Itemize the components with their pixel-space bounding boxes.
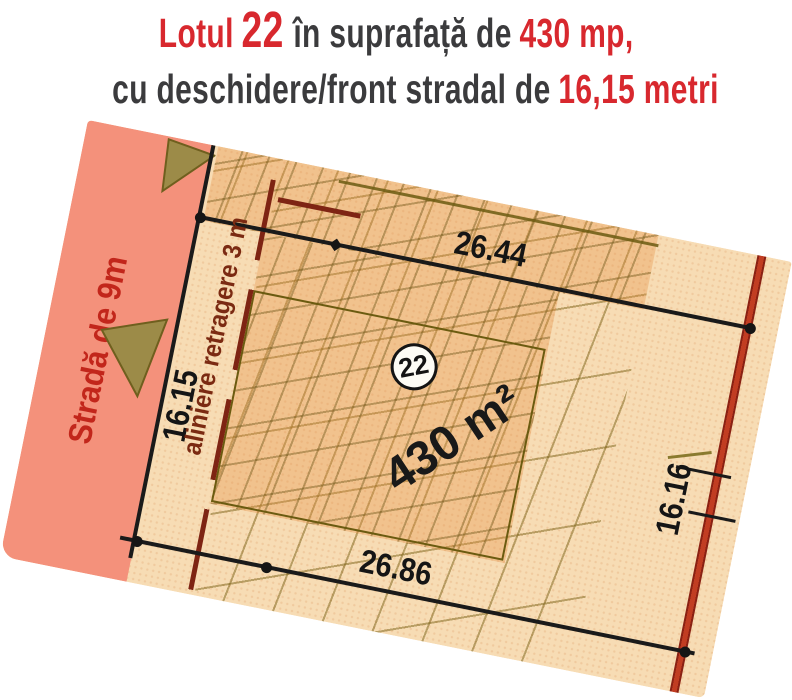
- site-plan: Stradă de 9m 26.44: [0, 120, 792, 698]
- title-line-2: cu deschidere/front stradal de16,15 metr…: [112, 66, 719, 113]
- title-frontage-value: 16,15 metri: [558, 66, 718, 112]
- page-title: Lotul22în suprafață de430 mp, cu deschid…: [0, 6, 792, 122]
- survey-point: [194, 211, 207, 224]
- title-lotul: Lotul: [159, 10, 234, 56]
- title-line-1: Lotul22în suprafață de430 mp,: [159, 6, 634, 57]
- title-middle: în suprafață de: [293, 10, 511, 56]
- title-lot-number: 22: [241, 1, 283, 58]
- flyer: Lotul22în suprafață de430 mp, cu deschid…: [0, 0, 792, 700]
- title-area: 430 mp,: [519, 10, 633, 56]
- title-frontage-prefix: cu deschidere/front stradal de: [112, 66, 550, 112]
